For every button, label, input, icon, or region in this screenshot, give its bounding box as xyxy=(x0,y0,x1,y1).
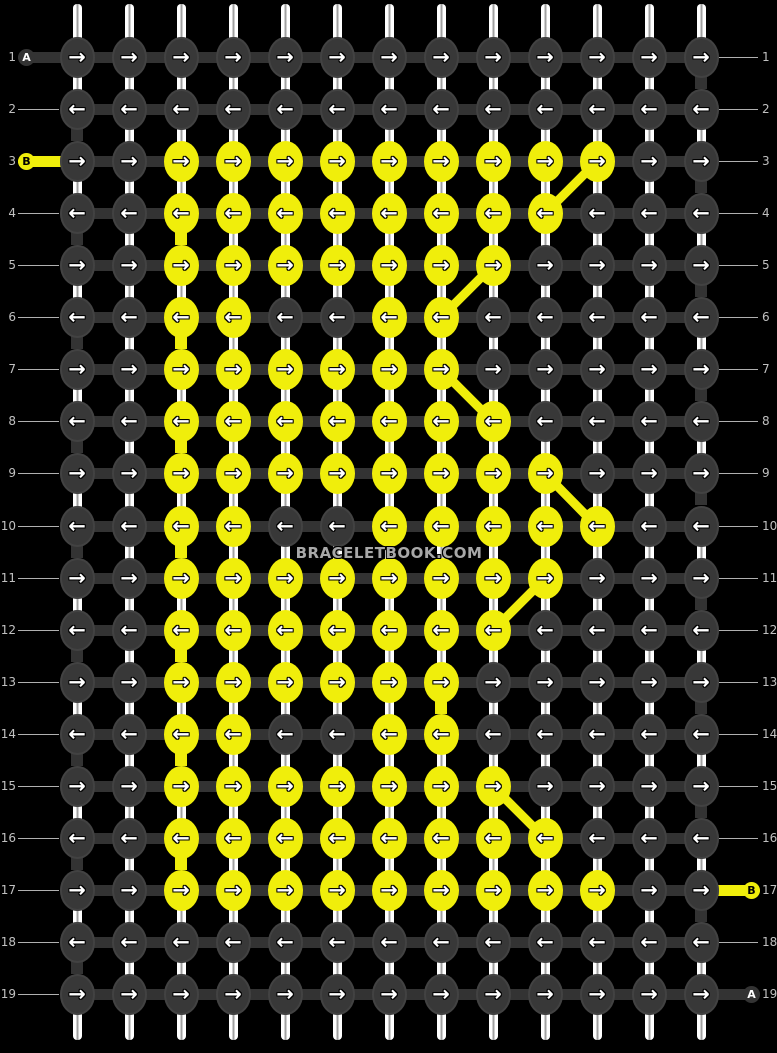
row-guide-line xyxy=(18,109,59,110)
arrow-right-icon: → xyxy=(172,776,190,797)
arrow-left-icon: ← xyxy=(588,203,606,224)
knot-r2-c6: ← xyxy=(320,89,355,130)
arrow-right-icon: → xyxy=(588,776,606,797)
knot-r19-c4: → xyxy=(216,974,251,1015)
arrow-left-icon: ← xyxy=(328,99,346,120)
knot-r12-c3: ← xyxy=(164,610,199,651)
row-guide-line xyxy=(719,734,758,735)
row-guide-line xyxy=(18,421,59,422)
knot-r3-c6: → xyxy=(320,141,355,182)
knot-r15-c4: → xyxy=(216,766,251,807)
thread-segment-yellow xyxy=(175,440,187,453)
arrow-left-icon: ← xyxy=(588,307,606,328)
knot-r3-c13: → xyxy=(684,141,719,182)
arrow-left-icon: ← xyxy=(588,516,606,537)
knot-r5-c5: → xyxy=(268,245,303,286)
arrow-left-icon: ← xyxy=(172,516,190,537)
thread-segment-dark xyxy=(695,492,707,505)
knot-r16-c12: ← xyxy=(632,818,667,859)
knot-r4-c5: ← xyxy=(268,193,303,234)
knot-r11-c11: → xyxy=(580,558,615,599)
knot-r11-c4: → xyxy=(216,558,251,599)
arrow-left-icon: ← xyxy=(276,516,294,537)
knot-r1-c2: → xyxy=(112,37,147,78)
knot-r14-c12: ← xyxy=(632,714,667,755)
thread-label-B-left: B xyxy=(18,153,35,170)
knot-r10-c9: ← xyxy=(476,506,511,547)
arrow-left-icon: ← xyxy=(276,411,294,432)
arrow-left-icon: ← xyxy=(224,724,242,745)
arrow-right-icon: → xyxy=(692,47,710,68)
knot-r5-c2: → xyxy=(112,245,147,286)
knot-r16-c9: ← xyxy=(476,818,511,859)
row-guide-line xyxy=(18,526,59,527)
arrow-left-icon: ← xyxy=(484,828,502,849)
knot-r5-c7: → xyxy=(372,245,407,286)
arrow-left-icon: ← xyxy=(588,99,606,120)
arrow-left-icon: ← xyxy=(68,411,86,432)
row-number-left-11: 11 xyxy=(0,570,16,586)
knot-r18-c11: ← xyxy=(580,922,615,963)
knot-r12-c7: ← xyxy=(372,610,407,651)
arrow-left-icon: ← xyxy=(172,99,190,120)
knot-r11-c9: → xyxy=(476,558,511,599)
arrow-right-icon: → xyxy=(328,151,346,172)
arrow-right-icon: → xyxy=(380,672,398,693)
arrow-right-icon: → xyxy=(484,568,502,589)
knot-r9-c8: → xyxy=(424,453,459,494)
row-number-left-19: 19 xyxy=(0,986,16,1002)
knot-r1-c13: → xyxy=(684,37,719,78)
row-guide-line xyxy=(18,734,59,735)
knot-r2-c9: ← xyxy=(476,89,511,130)
knot-r9-c11: → xyxy=(580,453,615,494)
knot-r2-c12: ← xyxy=(632,89,667,130)
row-number-left-3: 3 xyxy=(0,153,16,169)
arrow-left-icon: ← xyxy=(484,203,502,224)
knot-r7-c10: → xyxy=(528,349,563,390)
arrow-left-icon: ← xyxy=(588,724,606,745)
knot-r14-c9: ← xyxy=(476,714,511,755)
arrow-right-icon: → xyxy=(276,880,294,901)
thread-label-A-right: A xyxy=(743,986,760,1003)
knot-r6-c2: ← xyxy=(112,297,147,338)
knot-r13-c11: → xyxy=(580,662,615,703)
row-guide-line xyxy=(18,630,59,631)
arrow-right-icon: → xyxy=(68,255,86,276)
arrow-right-icon: → xyxy=(588,672,606,693)
knot-r10-c7: ← xyxy=(372,506,407,547)
knot-r12-c10: ← xyxy=(528,610,563,651)
knot-r17-c7: → xyxy=(372,870,407,911)
arrow-left-icon: ← xyxy=(224,516,242,537)
row-guide-line xyxy=(18,265,59,266)
arrow-right-icon: → xyxy=(640,255,658,276)
bracelet-pattern-board: →→→→→→→→→→→→→←←←←←←←←←←←←←→→→→→→→→→→→→→←… xyxy=(0,0,777,1053)
row-guide-line xyxy=(719,786,758,787)
arrow-right-icon: → xyxy=(692,255,710,276)
knot-r1-c8: → xyxy=(424,37,459,78)
knot-r11-c3: → xyxy=(164,558,199,599)
knot-r15-c5: → xyxy=(268,766,303,807)
arrow-left-icon: ← xyxy=(692,828,710,849)
arrow-right-icon: → xyxy=(68,47,86,68)
arrow-left-icon: ← xyxy=(380,411,398,432)
thread-segment-dark xyxy=(71,128,83,141)
row-guide-line xyxy=(18,317,59,318)
arrow-right-icon: → xyxy=(120,359,138,380)
arrow-left-icon: ← xyxy=(276,828,294,849)
arrow-left-icon: ← xyxy=(68,932,86,953)
row-number-left-18: 18 xyxy=(0,934,16,950)
knot-r13-c10: → xyxy=(528,662,563,703)
arrow-left-icon: ← xyxy=(432,203,450,224)
knot-r8-c7: ← xyxy=(372,401,407,442)
thread-segment-yellow xyxy=(175,649,187,662)
thread-segment-dark xyxy=(695,701,707,714)
arrow-left-icon: ← xyxy=(432,932,450,953)
knot-r5-c6: → xyxy=(320,245,355,286)
knot-r8-c10: ← xyxy=(528,401,563,442)
row-guide-line xyxy=(18,994,59,995)
row-number-left-5: 5 xyxy=(0,257,16,273)
knot-r13-c6: → xyxy=(320,662,355,703)
knot-r6-c6: ← xyxy=(320,297,355,338)
row-number-right-11: 11 xyxy=(762,570,777,586)
knot-r8-c2: ← xyxy=(112,401,147,442)
knot-r18-c2: ← xyxy=(112,922,147,963)
arrow-left-icon: ← xyxy=(692,307,710,328)
knot-r11-c10: → xyxy=(528,558,563,599)
arrow-left-icon: ← xyxy=(276,620,294,641)
arrow-right-icon: → xyxy=(120,255,138,276)
arrow-right-icon: → xyxy=(224,47,242,68)
arrow-left-icon: ← xyxy=(224,203,242,224)
arrow-left-icon: ← xyxy=(640,724,658,745)
arrow-right-icon: → xyxy=(640,359,658,380)
knot-r6-c8: ← xyxy=(424,297,459,338)
knot-r11-c5: → xyxy=(268,558,303,599)
arrow-right-icon: → xyxy=(588,255,606,276)
arrow-right-icon: → xyxy=(692,568,710,589)
knot-r10-c12: ← xyxy=(632,506,667,547)
arrow-right-icon: → xyxy=(276,151,294,172)
row-number-left-9: 9 xyxy=(0,465,16,481)
thread-segment-dark xyxy=(695,805,707,818)
thread-segment-dark xyxy=(71,232,83,245)
row-number-right-16: 16 xyxy=(762,830,777,846)
knot-r17-c10: → xyxy=(528,870,563,911)
arrow-right-icon: → xyxy=(120,880,138,901)
arrow-left-icon: ← xyxy=(380,828,398,849)
arrow-left-icon: ← xyxy=(380,932,398,953)
arrow-left-icon: ← xyxy=(120,516,138,537)
knot-r6-c4: ← xyxy=(216,297,251,338)
arrow-right-icon: → xyxy=(640,880,658,901)
row-guide-line xyxy=(18,786,59,787)
arrow-right-icon: → xyxy=(68,568,86,589)
arrow-left-icon: ← xyxy=(536,516,554,537)
arrow-left-icon: ← xyxy=(224,99,242,120)
knot-r11-c1: → xyxy=(60,558,95,599)
knot-r15-c12: → xyxy=(632,766,667,807)
knot-r7-c13: → xyxy=(684,349,719,390)
knot-r9-c12: → xyxy=(632,453,667,494)
knot-r16-c6: ← xyxy=(320,818,355,859)
row-number-right-12: 12 xyxy=(762,622,777,638)
arrow-left-icon: ← xyxy=(432,411,450,432)
arrow-right-icon: → xyxy=(276,463,294,484)
thread-segment-yellow xyxy=(175,232,187,245)
knot-r2-c3: ← xyxy=(164,89,199,130)
knot-r10-c10: ← xyxy=(528,506,563,547)
row-number-right-10: 10 xyxy=(762,518,777,534)
knot-r5-c1: → xyxy=(60,245,95,286)
knot-r16-c13: ← xyxy=(684,818,719,859)
arrow-right-icon: → xyxy=(120,463,138,484)
knot-r12-c2: ← xyxy=(112,610,147,651)
knot-r12-c1: ← xyxy=(60,610,95,651)
arrow-left-icon: ← xyxy=(692,411,710,432)
arrow-left-icon: ← xyxy=(484,307,502,328)
knot-r19-c3: → xyxy=(164,974,199,1015)
arrow-left-icon: ← xyxy=(328,516,346,537)
arrow-right-icon: → xyxy=(640,47,658,68)
thread-segment-dark xyxy=(695,388,707,401)
knot-r16-c10: ← xyxy=(528,818,563,859)
arrow-right-icon: → xyxy=(692,880,710,901)
arrow-left-icon: ← xyxy=(588,411,606,432)
row-guide-line xyxy=(719,578,758,579)
knot-r9-c5: → xyxy=(268,453,303,494)
arrow-left-icon: ← xyxy=(432,516,450,537)
knot-r14-c7: ← xyxy=(372,714,407,755)
arrow-left-icon: ← xyxy=(640,620,658,641)
arrow-left-icon: ← xyxy=(380,620,398,641)
arrow-left-icon: ← xyxy=(692,516,710,537)
thread-segment-dark xyxy=(71,753,83,766)
knot-r18-c12: ← xyxy=(632,922,667,963)
row-number-left-17: 17 xyxy=(0,882,16,898)
row-guide-line xyxy=(719,213,758,214)
knot-r3-c9: → xyxy=(476,141,511,182)
knot-r13-c1: → xyxy=(60,662,95,703)
knot-r2-c7: ← xyxy=(372,89,407,130)
arrow-right-icon: → xyxy=(172,568,190,589)
knot-r17-c3: → xyxy=(164,870,199,911)
row-guide-line xyxy=(18,838,59,839)
arrow-left-icon: ← xyxy=(328,203,346,224)
knot-r4-c6: ← xyxy=(320,193,355,234)
knot-r4-c13: ← xyxy=(684,193,719,234)
arrow-left-icon: ← xyxy=(536,411,554,432)
arrow-left-icon: ← xyxy=(276,307,294,328)
arrow-left-icon: ← xyxy=(692,203,710,224)
thread-segment-dark xyxy=(695,284,707,297)
knot-r8-c12: ← xyxy=(632,401,667,442)
knot-r8-c3: ← xyxy=(164,401,199,442)
arrow-right-icon: → xyxy=(640,776,658,797)
knot-r4-c8: ← xyxy=(424,193,459,234)
knot-r16-c2: ← xyxy=(112,818,147,859)
knot-r19-c13: → xyxy=(684,974,719,1015)
arrow-right-icon: → xyxy=(484,984,502,1005)
knot-r13-c7: → xyxy=(372,662,407,703)
arrow-right-icon: → xyxy=(224,463,242,484)
arrow-right-icon: → xyxy=(692,151,710,172)
knot-r18-c3: ← xyxy=(164,922,199,963)
arrow-right-icon: → xyxy=(224,776,242,797)
arrow-left-icon: ← xyxy=(68,307,86,328)
knot-r19-c1: → xyxy=(60,974,95,1015)
knot-r12-c4: ← xyxy=(216,610,251,651)
arrow-right-icon: → xyxy=(328,672,346,693)
arrow-right-icon: → xyxy=(640,463,658,484)
knot-r4-c11: ← xyxy=(580,193,615,234)
arrow-left-icon: ← xyxy=(172,620,190,641)
arrow-right-icon: → xyxy=(224,880,242,901)
knot-r13-c8: → xyxy=(424,662,459,703)
arrow-right-icon: → xyxy=(224,151,242,172)
thread-segment-dark xyxy=(695,180,707,193)
arrow-left-icon: ← xyxy=(484,620,502,641)
arrow-right-icon: → xyxy=(432,47,450,68)
arrow-right-icon: → xyxy=(692,776,710,797)
row-number-right-1: 1 xyxy=(762,49,777,65)
arrow-left-icon: ← xyxy=(640,516,658,537)
arrow-left-icon: ← xyxy=(536,99,554,120)
thread-segment-dark xyxy=(695,909,707,922)
knot-r14-c11: ← xyxy=(580,714,615,755)
knot-r11-c6: → xyxy=(320,558,355,599)
knot-r13-c4: → xyxy=(216,662,251,703)
knot-r3-c8: → xyxy=(424,141,459,182)
row-guide-line xyxy=(18,473,59,474)
arrow-right-icon: → xyxy=(588,47,606,68)
knot-r8-c5: ← xyxy=(268,401,303,442)
knot-r11-c7: → xyxy=(372,558,407,599)
knot-r5-c11: → xyxy=(580,245,615,286)
knot-r7-c8: → xyxy=(424,349,459,390)
knot-r17-c12: → xyxy=(632,870,667,911)
knot-r9-c2: → xyxy=(112,453,147,494)
knot-r19-c8: → xyxy=(424,974,459,1015)
arrow-left-icon: ← xyxy=(276,724,294,745)
knot-r19-c7: → xyxy=(372,974,407,1015)
row-guide-line xyxy=(719,161,758,162)
arrow-left-icon: ← xyxy=(640,411,658,432)
row-number-right-5: 5 xyxy=(762,257,777,273)
arrow-right-icon: → xyxy=(432,776,450,797)
row-guide-line xyxy=(18,213,59,214)
knot-r9-c7: → xyxy=(372,453,407,494)
row-number-left-10: 10 xyxy=(0,518,16,534)
knot-r2-c10: ← xyxy=(528,89,563,130)
knot-r1-c10: → xyxy=(528,37,563,78)
arrow-right-icon: → xyxy=(328,776,346,797)
knot-r16-c4: ← xyxy=(216,818,251,859)
arrow-left-icon: ← xyxy=(640,828,658,849)
arrow-right-icon: → xyxy=(536,47,554,68)
arrow-left-icon: ← xyxy=(224,411,242,432)
knot-r19-c2: → xyxy=(112,974,147,1015)
row-number-right-6: 6 xyxy=(762,309,777,325)
thread-segment-dark xyxy=(71,336,83,349)
row-guide-line xyxy=(18,578,59,579)
knot-r7-c11: → xyxy=(580,349,615,390)
row-guide-line xyxy=(18,942,59,943)
row-number-left-2: 2 xyxy=(0,101,16,117)
arrow-right-icon: → xyxy=(172,255,190,276)
knot-r18-c9: ← xyxy=(476,922,511,963)
arrow-left-icon: ← xyxy=(640,99,658,120)
knot-r18-c6: ← xyxy=(320,922,355,963)
knot-r7-c5: → xyxy=(268,349,303,390)
knot-r3-c5: → xyxy=(268,141,303,182)
row-number-right-4: 4 xyxy=(762,205,777,221)
arrow-right-icon: → xyxy=(328,984,346,1005)
arrow-left-icon: ← xyxy=(692,932,710,953)
arrow-right-icon: → xyxy=(692,359,710,380)
knot-r8-c4: ← xyxy=(216,401,251,442)
knot-r6-c7: ← xyxy=(372,297,407,338)
arrow-left-icon: ← xyxy=(432,99,450,120)
arrow-right-icon: → xyxy=(380,255,398,276)
knot-r15-c6: → xyxy=(320,766,355,807)
arrow-right-icon: → xyxy=(276,255,294,276)
arrow-right-icon: → xyxy=(276,776,294,797)
knot-r14-c5: ← xyxy=(268,714,303,755)
arrow-left-icon: ← xyxy=(484,411,502,432)
knot-r9-c13: → xyxy=(684,453,719,494)
arrow-right-icon: → xyxy=(484,47,502,68)
knot-r4-c3: ← xyxy=(164,193,199,234)
arrow-left-icon: ← xyxy=(120,932,138,953)
arrow-right-icon: → xyxy=(536,776,554,797)
knot-r2-c11: ← xyxy=(580,89,615,130)
arrow-left-icon: ← xyxy=(328,724,346,745)
arrow-left-icon: ← xyxy=(276,203,294,224)
arrow-left-icon: ← xyxy=(224,828,242,849)
arrow-left-icon: ← xyxy=(276,932,294,953)
knot-r7-c3: → xyxy=(164,349,199,390)
knot-r6-c5: ← xyxy=(268,297,303,338)
knot-r3-c12: → xyxy=(632,141,667,182)
arrow-right-icon: → xyxy=(588,568,606,589)
arrow-right-icon: → xyxy=(172,463,190,484)
arrow-left-icon: ← xyxy=(68,724,86,745)
knot-r18-c10: ← xyxy=(528,922,563,963)
knot-r14-c6: ← xyxy=(320,714,355,755)
knot-r15-c8: → xyxy=(424,766,459,807)
arrow-right-icon: → xyxy=(380,880,398,901)
knot-r17-c5: → xyxy=(268,870,303,911)
row-guide-line xyxy=(18,369,59,370)
arrow-left-icon: ← xyxy=(536,203,554,224)
row-guide-line xyxy=(719,57,758,58)
arrow-right-icon: → xyxy=(172,672,190,693)
row-number-right-9: 9 xyxy=(762,465,777,481)
arrow-left-icon: ← xyxy=(380,516,398,537)
knot-r13-c9: → xyxy=(476,662,511,703)
row-number-right-3: 3 xyxy=(762,153,777,169)
thread-segment-dark xyxy=(71,649,83,662)
arrow-right-icon: → xyxy=(432,255,450,276)
arrow-right-icon: → xyxy=(328,255,346,276)
knot-r8-c11: ← xyxy=(580,401,615,442)
row-number-right-18: 18 xyxy=(762,934,777,950)
arrow-right-icon: → xyxy=(120,776,138,797)
